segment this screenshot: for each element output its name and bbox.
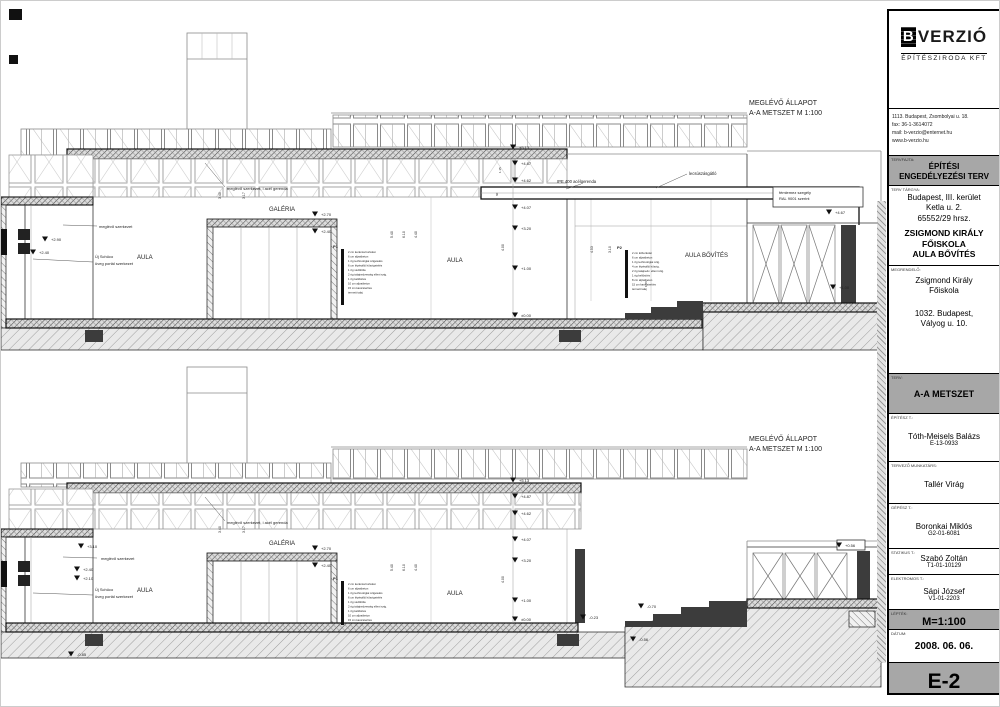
drawing-label: termett talaj [348,291,363,295]
project-name-line: ZSIGMOND KIRÁLY [889,228,999,239]
drawing-title-label: TERV: [891,375,903,380]
electrical-engineer-box: ELEKTROMOS T.: Sápi József V1-01-2203 [889,575,999,610]
elevation-label: +4.07 [521,205,532,210]
drawing-label: 6 cm aljzatbeton [348,587,369,591]
drawing-label: 2 rtg talajnedvesség elleni szig. [348,273,387,277]
client-address-line: 1032. Budapest, [889,309,999,319]
elevation-label: +3.20 [521,558,532,563]
left-wall-cut [1,205,6,328]
drawing-label: 5.40 [390,564,394,571]
section-view-bottom [1,367,881,687]
elevation-label: +5.13 [519,145,530,150]
drawing-label: Új Schüco [95,254,114,259]
date-box: DÁTUM: 2008. 06. 06. [889,630,999,663]
clerestory-band-rear [333,115,747,147]
address-line: www.b-verzio.hu [892,137,997,145]
elevation-label: +4.67 [835,210,846,215]
elevation-arrow [312,212,318,217]
drawing-label: Új Schüco [95,587,114,592]
elevation-label: +5.13 [519,478,530,483]
drawing-label: AULA [447,258,463,264]
drawing-label: 1 rtg technológiai szig. [632,260,660,264]
drawing-label: meglévő szerkezet [101,556,135,561]
drawing-label: 1 rtg kellősítés [348,609,367,613]
layer-note-marker [341,249,344,305]
floor-slab [6,623,578,632]
architect-box: ÉPÍTÉSZ T.: Tóth-Meisels Balázs E-13-093… [889,414,999,462]
plan-type-line: ÉPÍTÉSI [889,162,999,172]
elevation-label: +1.00 [521,598,532,603]
address-line: fax: 36-1-3614072 [892,121,997,129]
logo-name: VERZIÓ [918,27,987,47]
elevation-label: ±0.00 [521,313,532,318]
elevation-label: +4.07 [521,537,532,542]
drawing-label: 2 rtg talajnedv. elleni szig. [632,269,664,273]
project-box: TERV TÁRGYA: Budapest, III. kerület Ketl… [889,186,999,266]
platform-slab [747,599,881,608]
drawing-label: üveg portál szerkezet [95,261,134,266]
drawing-label: 6 cm aljzatbeton [348,255,369,259]
plan-type-label: TERVFAJTA: [891,157,914,162]
entrance-doors [753,225,835,303]
plan-type-box: TERVFAJTA: ÉPÍTÉSI ENGEDÉLYEZÉSI TERV [889,156,999,186]
elevation-label: -0.23 [589,615,599,620]
drawing-label: 2 cm kőburkolat [632,251,652,255]
person-id: E-13-0933 [889,441,999,447]
drawing-label: 4.00 [501,244,505,251]
role-label: GÉPÉSZ T.: [891,505,913,510]
drawing-label: termett talaj [632,287,647,291]
project-address-line: Budapest, III. kerület [889,193,999,203]
elevation-label: +2.90 [51,237,62,242]
stair-step [681,607,709,627]
section-drawings-canvas: MEGLÉVŐ ÁLLAPOTA-A METSZET M 1:100meglév… [1,1,885,701]
role-label: TERVEZŐ MUNKATÁRS: [891,463,937,468]
ground-hatch [1,328,703,350]
elevation-label: -0.85 [77,652,87,657]
company-address: 1113. Budapest, Zsombolyai u. 18. fax: 3… [889,109,999,156]
drawing-label: A-A METSZET M 1:100 [749,110,822,117]
drawing-label: P2 [617,245,623,250]
layer-note-marker [625,250,628,298]
elevation-label: -0.56 [639,637,649,642]
drawing-title: A-A METSZET [889,374,999,400]
portal-frame-block [18,561,30,572]
ground-hatch [625,601,881,687]
footing-pad [85,330,103,342]
drawing-label: fémlemez szegély [779,190,811,195]
elevation-label: +4.87 [521,161,532,166]
drawing-label: 6 cm lépésálló hőszigetelés [348,264,383,268]
entrance-doors [753,553,847,599]
drawing-label: 6.10 [402,564,406,571]
ground-hatch [703,312,881,350]
date-label: DÁTUM: [891,631,906,636]
elevation-label: +2.40 [83,567,94,572]
drawing-label: 3.40 [218,192,222,199]
drawing-label: AULA [447,591,463,597]
drawing-label: MEGLÉVŐ ÁLLAPOT [749,98,818,107]
drawing-label: 4.40 [414,231,418,238]
drawing-label: 15 cm kavicsterítés [348,286,373,290]
drawing-label: GALÉRIA [269,540,295,547]
drawing-label: AULA [137,588,153,594]
drawing-label: MEGLÉVŐ ÁLLAPOT [749,434,818,443]
roof-slab [67,483,581,493]
elevation-arrow [42,237,48,242]
project-name-line: FŐISKOLA [889,239,999,250]
portal-frame-block [18,575,30,586]
drawing-label: 3.17 [242,526,246,533]
drawing-label: meglévő szerkezet, i acél gerenda [227,186,288,191]
drawing-label: 6 cm aljzatbeton [632,256,653,260]
entrance-column [841,225,856,303]
footing-pad [557,634,579,646]
client-address-line: Vályog u. 10. [889,319,999,329]
clerestory-band-rear [333,449,747,479]
fold-mark-strip [877,201,886,663]
elevation-label: +1.00 [521,266,532,271]
logo-box: B VERZIÓ ÉPÍTÉSZIRODA KFT [889,27,999,109]
elevation-arrow [638,604,644,609]
logo-subtitle: ÉPÍTÉSZIRODA KFT [901,53,986,62]
hall-glazing-row [93,493,581,529]
project-name-line: AULA BŐVÍTÉS [889,249,999,260]
project-address-line: Ketla u. 2. [889,203,999,213]
stair-step [653,614,681,627]
drawing-label: 8 cm aljzatbeton [632,278,653,282]
drawing-label: 1 rtg technológiai szigetelés [348,259,383,263]
plan-type-line: ENGEDÉLYEZÉSI TERV [889,172,999,182]
drawing-label: 1 rtg kellősítés [632,274,651,278]
drawing-label: GALÉRIA [269,206,295,213]
drawing-sheet: MEGLÉVŐ ÁLLAPOTA-A METSZET M 1:100meglév… [0,0,1000,707]
collaborator-box: TERVEZŐ MUNKATÁRS: Tallér Virág [889,462,999,504]
client-name-line: Zsigmond Király [889,276,999,286]
drawing-label: 5.40 [390,231,394,238]
drawing-label: IPE 400 acélgerenda [557,179,597,184]
sheet-number-box: E-2 [889,663,999,695]
elevation-label: +4.62 [521,511,532,516]
elevation-label: +2.40 [321,563,332,568]
role-label: ELEKTROMOS T.: [891,576,924,581]
drawing-label: 1 rtg technológiai szigetelés [348,591,383,595]
elevation-arrow [78,544,84,549]
person-id: V1-01-2203 [889,596,999,602]
client-box: MEGRENDELŐ: Zsigmond Király Főiskola 103… [889,266,999,374]
drawing-label: 1 rtg védőfólia [348,600,366,604]
structural-engineer-box: STATIKUS T.: Szabó Zoltán T1-01-10129 [889,549,999,575]
drawing-label: 6.10 [402,231,406,238]
elevation-arrow [826,210,832,215]
sheet-number: E-2 [889,663,999,694]
drawing-label: 3.40 [218,526,222,533]
elevation-label: +2.70 [321,212,332,217]
elevation-arrow [312,546,318,551]
galeria-slab [207,553,337,561]
section-view-top [1,9,881,350]
end-wall-cut [575,549,585,623]
drawing-label: P1 [333,244,339,249]
drawing-label: P1 [333,576,339,581]
platform-slab [701,303,881,312]
footing-pad [85,634,103,646]
drawing-label: 4.53 [590,246,594,253]
drawing-label: lecsúszásgátló [689,171,717,176]
elevation-arrow [74,567,80,572]
drawing-title-box: TERV: A-A METSZET [889,374,999,414]
drawing-label: meglévő szerkezet [99,224,133,229]
drawing-label: meglévő szerkezet, i acél gerenda [227,520,288,525]
person-id: T1-01-10129 [889,563,999,569]
floor-slab [6,319,702,328]
stair-step [625,313,651,319]
address-line: 1113. Budapest, Zsombolyai u. 18. [892,113,997,121]
elevation-arrow [510,478,516,483]
drawing-label: 4.00 [501,576,505,583]
annex-roof-slab [1,197,93,205]
entrance-column [857,551,870,601]
elevation-label: +2.70 [321,546,332,551]
elevation-label: -0.70 [647,604,657,609]
drawing-label: 3.17 [242,192,246,199]
drawing-label: 2 cm kerámia burkolat [348,582,376,586]
mech-engineer-box: GÉPÉSZ T.: Boronkai Miklós G2-01-6081 [889,504,999,549]
project-address-line: 65552/29 hrsz. [889,214,999,224]
project-label: TERV TÁRGYA: [891,187,920,192]
drawing-label: 1 rtg védőfólia [348,268,366,272]
address-line: mail: b-verzio@enternet.hu [892,129,997,137]
elevation-arrow [312,563,318,568]
role-label: STATIKUS T.: [891,550,915,555]
column-footing [849,611,875,627]
annex-roof-slab [1,529,93,537]
scale-label: LÉPTÉK: [891,611,907,616]
stair-step [709,601,747,627]
portal-frame-block [18,243,30,254]
elevation-label: +4.62 [521,178,532,183]
portal-frame-block [18,229,30,240]
drawing-label: AULA [137,255,153,261]
sheet-edge-mark [9,55,18,64]
stair-step [677,301,703,319]
drawing-label: 10 cm aljzatbeton [348,614,370,618]
person-id: G2-01-6081 [889,531,999,537]
stair-step [651,307,677,319]
elevation-label: +1.00 [839,285,850,290]
elevation-label: ±0.00 [521,617,532,622]
annex-glazing-row [9,155,93,197]
roof-slab [67,149,567,159]
scale-box: LÉPTÉK: M=1:100 [889,610,999,630]
layer-note-marker [341,581,344,625]
elevation-arrow [74,576,80,581]
drawing-label: 2 cm kerámia burkolat [348,250,376,254]
client-name-line: Főiskola [889,286,999,296]
drawing-label: 1 rtg kellősítés [348,277,367,281]
sheet-corner-mark [9,9,22,20]
drawing-label: 15 cm kavicsterítés [632,283,657,287]
galeria-slab [207,219,337,227]
annex-glazing-row [9,489,93,529]
elevation-label: +3.10 [87,544,98,549]
elevation-label: +2.10 [83,576,94,581]
stair-step [625,621,653,627]
drawing-label: 2 rtg talajnedvesség elleni szig. [348,605,387,609]
drawing-label: RAL 9001 szerint [779,196,810,201]
drawing-label: 4.40 [414,564,418,571]
drawing-label: 4 cm lépésálló hőszig. [632,265,660,269]
elevation-label: +2.40 [321,229,332,234]
title-block: B VERZIÓ ÉPÍTÉSZIRODA KFT 1113. Budapest… [887,9,1000,695]
logo-b-mark: B [901,27,916,47]
drawing-label: 3.10 [608,246,612,253]
drawing-label: A-A METSZET M 1:100 [749,446,822,453]
drawing-label: 10 cm aljzatbeton [348,282,370,286]
drawing-label: 6 cm lépésálló hőszigetelés [348,596,383,600]
elevation-label: +2.40 [39,250,50,255]
elevation-label: +0.56 [845,543,856,548]
elevation-arrow [312,229,318,234]
role-label: ÉPÍTÉSZ T.: [891,415,913,420]
drawing-label: üveg portál szerkezet [95,594,134,599]
footing-pad [559,330,581,342]
drawing-label: 1.15 [498,167,502,173]
drawing-label: 15 cm kavicsterítés [348,618,373,622]
elevation-label: +3.20 [521,226,532,231]
drawing-label: 60 [495,192,499,196]
client-label: MEGRENDELŐ: [891,267,921,272]
drawing-label: AULA BŐVÍTÉS [685,252,728,259]
elevation-label: +4.87 [521,494,532,499]
